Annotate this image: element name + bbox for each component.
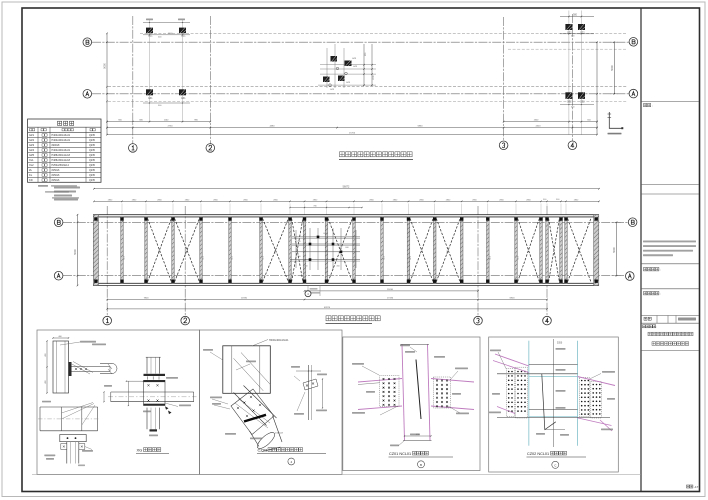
svg-text:#200x8: #200x8 xyxy=(52,144,61,147)
svg-text:#150x6: #150x6 xyxy=(52,169,61,172)
svg-text:H250x250x9x14: H250x250x9x14 xyxy=(52,164,70,167)
svg-text:GZ2: GZ2 xyxy=(29,138,35,142)
svg-text:4480: 4480 xyxy=(270,126,276,128)
svg-text:Q235: Q235 xyxy=(89,149,96,152)
svg-text:#150x6: #150x6 xyxy=(52,179,61,182)
svg-text:11630: 11630 xyxy=(387,289,394,291)
svg-text:B: B xyxy=(420,463,422,467)
svg-text:5860: 5860 xyxy=(418,126,424,128)
svg-text:450: 450 xyxy=(336,266,339,268)
svg-text:Q235: Q235 xyxy=(89,159,96,162)
svg-text:GZ1: GZ1 xyxy=(148,36,153,38)
svg-text:133.5x8: 133.5x8 xyxy=(275,433,284,435)
svg-text:GZ1: GZ1 xyxy=(29,133,35,137)
svg-text:5000: 5000 xyxy=(104,63,107,69)
svg-text:5000: 5000 xyxy=(611,65,614,71)
svg-text:Q235: Q235 xyxy=(89,139,96,142)
svg-text:Q235: Q235 xyxy=(89,144,96,147)
svg-text:780: 780 xyxy=(313,206,316,208)
svg-text:GZ1: GZ1 xyxy=(181,36,186,38)
svg-text:H400x400x13x21: H400x400x13x21 xyxy=(52,149,71,152)
svg-text:#150x6: #150x6 xyxy=(52,174,61,177)
svg-text:600: 600 xyxy=(345,247,348,249)
svg-text:CZ02 NCL01: CZ02 NCL01 xyxy=(527,452,549,456)
svg-text:H400x400x13x21: H400x400x13x21 xyxy=(52,134,71,137)
svg-text:GZ1: GZ1 xyxy=(181,98,186,100)
svg-text:Q235: Q235 xyxy=(89,174,96,177)
svg-text:H488x300x11x18: H488x300x11x18 xyxy=(52,159,71,162)
svg-text:6900: 6900 xyxy=(510,298,516,300)
svg-text:GZ5: GZ5 xyxy=(29,153,35,157)
svg-text:XL2: XL2 xyxy=(29,163,34,167)
svg-text:XG: XG xyxy=(137,448,143,453)
svg-text:5000: 5000 xyxy=(613,247,616,253)
svg-text:Q235: Q235 xyxy=(89,164,96,167)
svg-text:450: 450 xyxy=(304,266,307,268)
svg-text:H400x400x13x21: H400x400x13x21 xyxy=(269,339,289,342)
svg-text:GZ4: GZ4 xyxy=(29,148,35,152)
svg-text:17330: 17330 xyxy=(387,298,394,300)
svg-text:KD: KD xyxy=(29,178,33,182)
svg-text:11930: 11930 xyxy=(241,298,248,300)
svg-text:7800: 7800 xyxy=(144,298,150,300)
svg-text:GZ2: GZ2 xyxy=(580,102,585,104)
svg-text:Q235: Q235 xyxy=(89,169,96,172)
svg-text:Q235: Q235 xyxy=(89,154,96,157)
svg-text:-17: -17 xyxy=(694,485,699,489)
svg-text:56072: 56072 xyxy=(343,186,350,189)
svg-text:GZ3: GZ3 xyxy=(29,143,35,147)
svg-text:5350: 5350 xyxy=(557,343,563,345)
svg-text:43970: 43970 xyxy=(324,307,331,309)
svg-text:XL1: XL1 xyxy=(29,158,34,162)
svg-text:KL: KL xyxy=(29,173,33,177)
svg-text:350: 350 xyxy=(297,256,300,258)
svg-text:CZ03: CZ03 xyxy=(258,448,269,453)
svg-text:H488x300x11x18: H488x300x11x18 xyxy=(52,154,71,157)
svg-text:350: 350 xyxy=(297,241,300,243)
svg-text:CZ01 NCL01: CZ01 NCL01 xyxy=(389,452,411,456)
svg-text:5000: 5000 xyxy=(74,249,77,255)
svg-text:GZ1: GZ1 xyxy=(148,98,153,100)
svg-text:2730: 2730 xyxy=(168,126,174,128)
svg-text:Q235: Q235 xyxy=(89,134,96,137)
svg-text:600: 600 xyxy=(323,233,326,235)
svg-text:H400x400x13x21: H400x400x13x21 xyxy=(52,139,71,142)
svg-text:Q235: Q235 xyxy=(89,179,96,182)
svg-text:GZ2: GZ2 xyxy=(567,102,572,104)
svg-text:17250: 17250 xyxy=(349,133,356,135)
svg-text:2420: 2420 xyxy=(536,126,542,128)
